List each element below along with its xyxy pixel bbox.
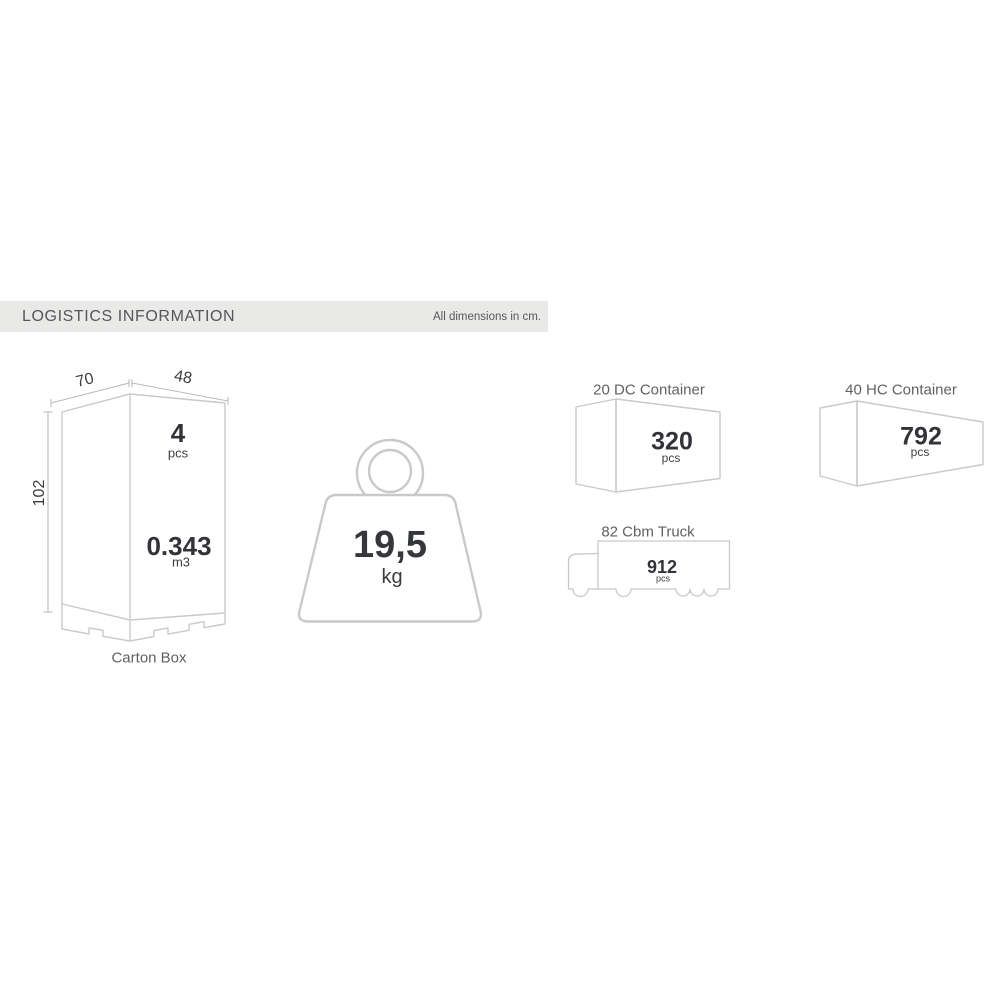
carton-pallet-top-line [62,604,225,620]
carton-box-outline [62,394,225,641]
weight-value: 19,5 [353,526,427,564]
logistics-diagram [0,0,1000,1000]
carton-box-caption: Carton Box [111,651,186,666]
container-40hc-title: 40 HC Container [845,383,957,398]
truck-unit: pcs [656,575,670,584]
container-20dc-drawing [576,399,720,492]
container-20dc-unit: pcs [662,452,681,464]
weight-unit: kg [381,567,402,587]
carton-quantity: 4 [171,420,185,446]
carton-box-drawing [62,394,225,641]
carton-quantity-unit: pcs [168,447,188,460]
dim-line-height [44,412,52,612]
container-40hc-end-face [820,401,857,486]
truck-chassis-wheels [569,589,730,597]
carton-volume-unit: m3 [172,556,190,569]
container-40hc-unit: pcs [911,446,930,458]
logistics-section: LOGISTICS INFORMATION All dimensions in … [0,0,1000,1000]
weight-ring-inner [369,450,411,492]
truck-cab [569,554,599,589]
carton-height-label: 102 [32,480,48,507]
container-20dc-end-face [576,399,616,492]
carton-dimension-lines [44,380,228,613]
carton-depth-label: 48 [173,369,193,388]
truck-title: 82 Cbm Truck [601,525,694,540]
container-20dc-title: 20 DC Container [593,383,705,398]
